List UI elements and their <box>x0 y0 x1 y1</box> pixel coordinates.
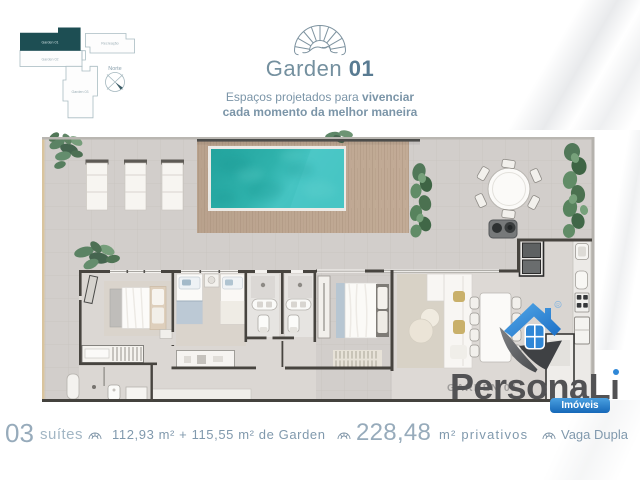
svg-text:R: R <box>556 303 560 309</box>
